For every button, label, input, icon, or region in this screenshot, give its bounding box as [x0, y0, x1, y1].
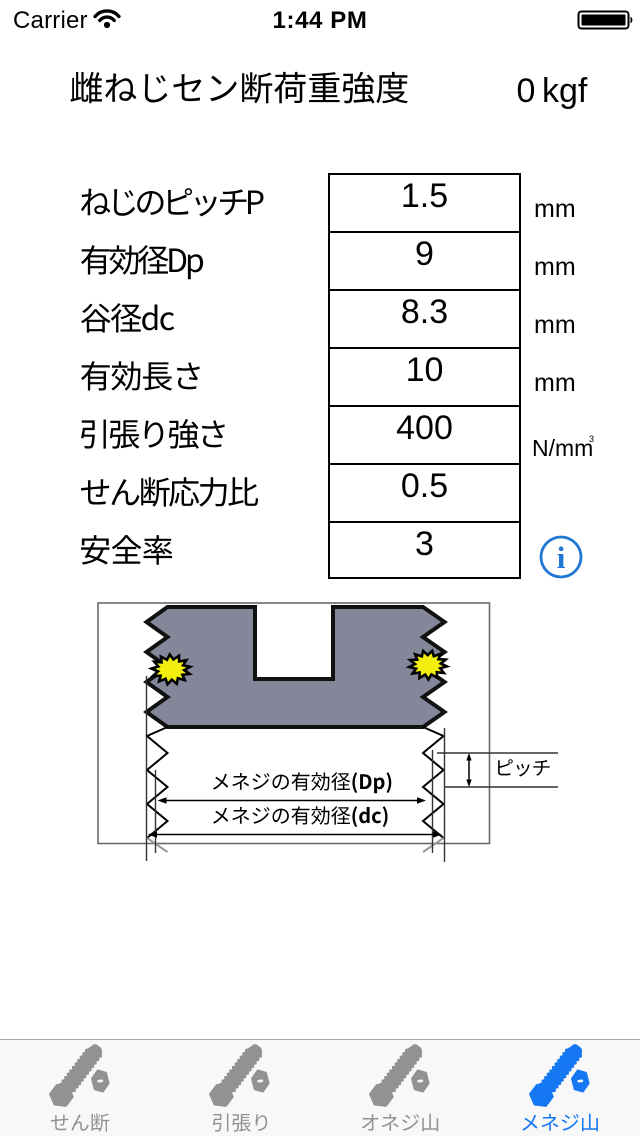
svg-text:i: i [557, 540, 566, 575]
